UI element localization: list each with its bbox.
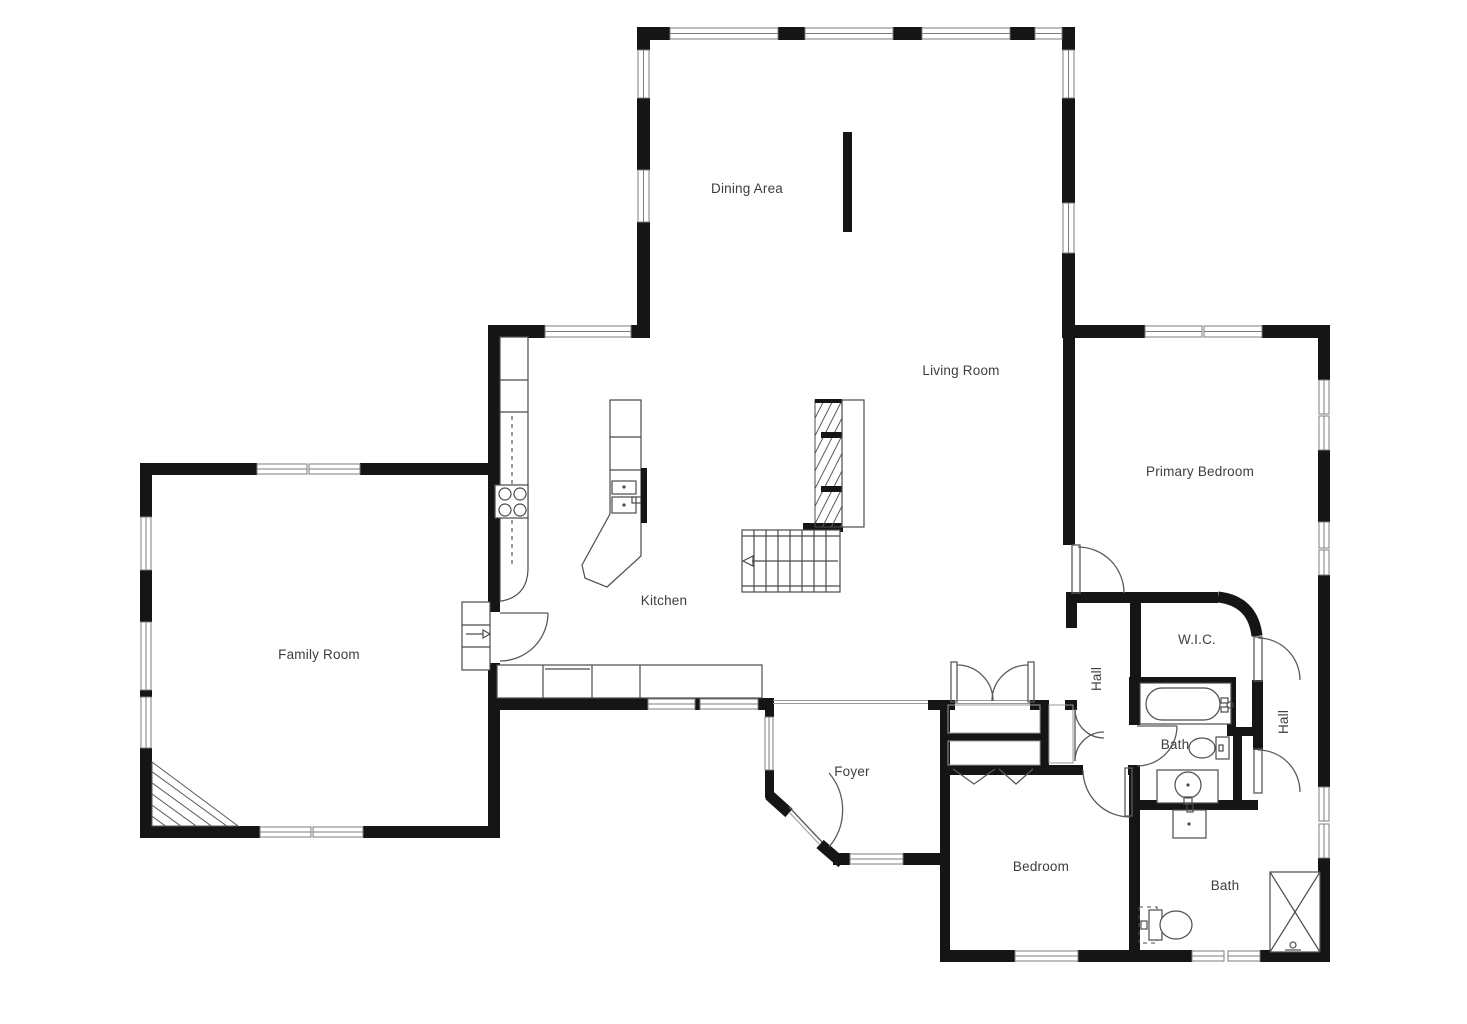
family-room-shelf [462, 602, 490, 670]
page-background [0, 0, 1467, 1024]
room-label-family-room: Family Room [278, 647, 360, 662]
room-label-hall-east: Hall [1276, 710, 1291, 734]
vanity-sink-icon [1157, 770, 1218, 804]
kitchen-wall-counter [500, 337, 528, 601]
room-label-kitchen: Kitchen [641, 593, 687, 608]
room-label-bedroom: Bedroom [1013, 859, 1069, 874]
room-label-living-room: Living Room [922, 363, 999, 378]
base-cabinet-run [497, 665, 762, 698]
bathtub-icon [1140, 683, 1233, 724]
room-label-foyer: Foyer [834, 764, 870, 779]
stair-chimney-hatch [815, 399, 864, 527]
floor-plan-drawing: Dining Area Living Room Primary Bedroom … [0, 0, 1467, 1024]
floor-plan-canvas: Dining Area Living Room Primary Bedroom … [0, 0, 1467, 1024]
room-label-primary-bedroom: Primary Bedroom [1146, 464, 1254, 479]
room-label-wic: W.I.C. [1178, 632, 1216, 647]
dining-partition-wall [843, 132, 852, 232]
room-label-bath-second: Bath [1211, 878, 1240, 893]
room-label-bath-main: Bath [1161, 737, 1190, 752]
cooktop-icon [495, 485, 528, 518]
room-label-dining-area: Dining Area [711, 181, 783, 196]
toilet-icon [1189, 737, 1229, 759]
shower-icon [1270, 872, 1320, 952]
room-label-hall-upper: Hall [1089, 667, 1104, 691]
staircase [742, 530, 840, 592]
